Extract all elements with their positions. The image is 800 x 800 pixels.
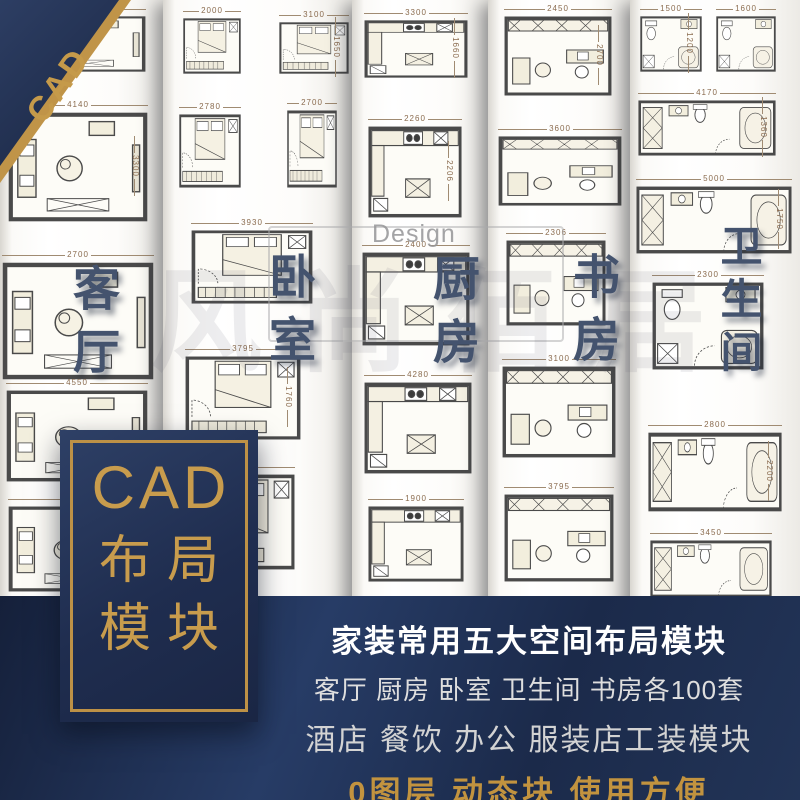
dim-label: 2700 xyxy=(287,99,337,107)
cad-box-line-2: 布局 xyxy=(83,532,235,590)
cad-title-box-border: CAD 布局 模块 xyxy=(70,440,248,712)
dim-label: 3450 xyxy=(650,529,772,537)
room-label-living: 客厅 xyxy=(58,264,127,390)
room-label-bedroom: 卧室 xyxy=(254,252,323,378)
poster-canvas: 3300 4140 3300 2700 4550 3900 2000 3100 xyxy=(0,0,800,800)
dim-label-side: 1200 xyxy=(685,13,693,73)
dim-label-side: 1660 xyxy=(451,18,459,78)
plan-tile: 4170 1360 xyxy=(638,100,776,156)
floor-plan-study xyxy=(498,136,622,206)
floor-plan-kitchen xyxy=(368,506,464,582)
dim-label: 1500 xyxy=(640,5,702,13)
plan-tile: 3600 xyxy=(498,136,622,206)
plan-tile: 2260 2206 xyxy=(368,126,462,218)
dim-label: 2000 xyxy=(183,7,241,15)
cad-box-line-3: 模块 xyxy=(83,600,235,658)
dim-label: 3600 xyxy=(498,125,622,133)
banner-line-3: 酒店 餐饮 办公 服装店工装模块 xyxy=(262,715,796,759)
dim-label-side: 2700 xyxy=(595,25,603,85)
banner-line-2: 客厅 厨房 卧室 卫生间 书房各100套 xyxy=(262,670,796,707)
plan-tile: 3795 xyxy=(504,494,614,582)
room-label-bathroom: 卫生间 xyxy=(708,224,769,383)
plan-tile: 4280 xyxy=(364,382,472,474)
dim-label-side: 3300 xyxy=(131,136,139,196)
plan-tile: 1500 1200 xyxy=(640,16,702,72)
banner-line-4: 0图层 动态块 使用方便 xyxy=(262,767,796,800)
dim-label-side: 2206 xyxy=(445,141,453,201)
plan-tile: 1900 xyxy=(368,506,464,582)
dim-label-side: 1750 xyxy=(775,189,783,249)
plan-tile: 3300 1660 xyxy=(364,20,468,78)
dim-label: 3300 xyxy=(364,9,468,17)
dim-label: 5000 xyxy=(636,175,792,183)
plan-tile: 2800 2200 xyxy=(648,432,782,512)
plan-tile: 3100 1650 xyxy=(279,22,349,74)
plan-tile: 2780 xyxy=(179,114,241,188)
floor-plan-bathroom xyxy=(650,540,772,598)
dim-label-side: 1650 xyxy=(332,17,340,77)
floor-plan-kitchen xyxy=(364,382,472,474)
cad-title-box: CAD 布局 模块 xyxy=(60,430,258,722)
dim-label: 2260 xyxy=(368,115,462,123)
plan-tile: 3450 xyxy=(650,540,772,598)
dim-label: 1900 xyxy=(368,495,464,503)
dim-label: 1600 xyxy=(716,5,776,13)
dim-label: 3795 xyxy=(504,483,614,491)
banner-line-1: 家装常用五大空间布局模块 xyxy=(262,616,796,661)
cad-box-line-1: CAD xyxy=(88,453,231,522)
dim-label-side: 2200 xyxy=(765,441,773,501)
plan-tile: 1600 xyxy=(716,16,776,72)
room-label-kitchen: 厨房 xyxy=(418,254,487,380)
floor-plan-bathroom xyxy=(648,432,782,512)
dim-label: 4170 xyxy=(638,89,776,97)
floor-plan-bedroom xyxy=(179,114,241,188)
floor-plan-bedroom xyxy=(183,18,241,74)
plan-tile: 2450 2700 xyxy=(504,16,612,96)
plan-tile: 2700 xyxy=(287,110,337,188)
floor-plan-bathroom xyxy=(638,100,776,156)
room-label-study: 书房 xyxy=(558,252,627,378)
floor-plan-bathroom xyxy=(716,16,776,72)
plan-tile: 2000 xyxy=(183,18,241,74)
dim-label-side: 1360 xyxy=(759,97,767,157)
floor-plan-study xyxy=(504,494,614,582)
floor-plan-bedroom xyxy=(287,110,337,188)
dim-label: 2450 xyxy=(504,5,612,13)
dim-label: 2700 xyxy=(2,251,154,259)
dim-label: 2780 xyxy=(179,103,241,111)
dim-label: 2800 xyxy=(648,421,782,429)
banner-text-block: 家装常用五大空间布局模块 客厅 厨房 卧室 卫生间 书房各100套 酒店 餐饮 … xyxy=(262,596,796,800)
